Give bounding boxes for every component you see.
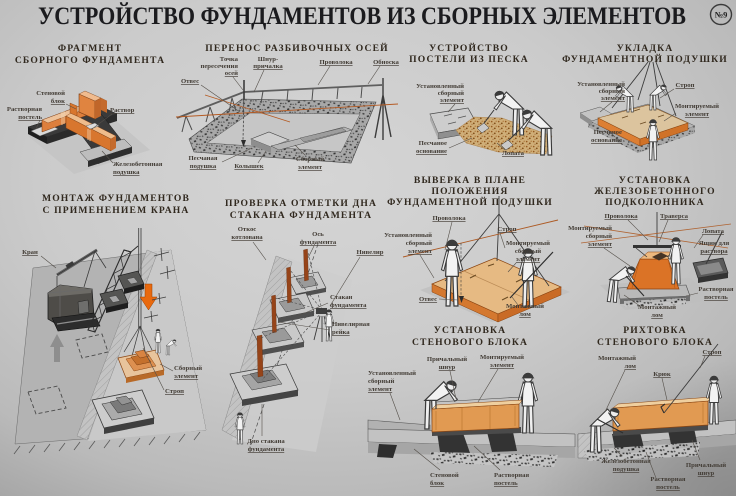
svg-text:Колышек: Колышек <box>234 163 263 170</box>
svg-text:СТЕНОВОГО БЛОКА: СТЕНОВОГО БЛОКА <box>597 337 713 348</box>
svg-text:РИХТОВКА: РИХТОВКА <box>623 325 686 336</box>
svg-text:ПОЛОЖЕНИЯ: ПОЛОЖЕНИЯ <box>432 186 509 197</box>
svg-text:ЖЕЛЕЗОБЕТОННОГО: ЖЕЛЕЗОБЕТОННОГО <box>594 186 715 197</box>
svg-text:Точка: Точка <box>220 56 239 63</box>
svg-text:Траверса: Траверса <box>660 213 689 220</box>
svg-text:сборный: сборный <box>599 88 625 95</box>
svg-text:Строп: Строп <box>675 82 694 89</box>
svg-text:Песчаная: Песчаная <box>188 155 217 162</box>
svg-text:СТЕНОВОГО БЛОКА: СТЕНОВОГО БЛОКА <box>412 337 528 348</box>
svg-text:Строп: Строп <box>165 388 184 395</box>
svg-text:Причальный: Причальный <box>686 462 726 469</box>
svg-text:Нивелирная: Нивелирная <box>332 321 370 328</box>
svg-text:осей: осей <box>225 70 238 77</box>
svg-text:котлована: котлована <box>231 234 263 241</box>
svg-text:ПЕРЕНОС РАЗБИВОЧНЫХ ОСЕЙ: ПЕРЕНОС РАЗБИВОЧНЫХ ОСЕЙ <box>205 42 389 54</box>
svg-text:УСТРОЙСТВО ФУНДАМЕНТОВ ИЗ СБОР: УСТРОЙСТВО ФУНДАМЕНТОВ ИЗ СБОРНЫХ ЭЛЕМЕН… <box>38 2 686 30</box>
svg-text:фундамента: фундамента <box>330 302 367 309</box>
svg-text:Монтируемый: Монтируемый <box>480 354 524 361</box>
svg-text:ПОСТЕЛИ ИЗ ПЕСКА: ПОСТЕЛИ ИЗ ПЕСКА <box>409 54 529 65</box>
svg-text:Лопата: Лопата <box>702 228 725 235</box>
svg-text:основание: основание <box>591 137 622 144</box>
svg-text:Растворная: Растворная <box>494 472 530 479</box>
svg-text:элемент: элемент <box>408 248 433 255</box>
svg-text:Шнур-: Шнур- <box>258 56 279 63</box>
svg-text:элемент: элемент <box>588 241 613 248</box>
svg-text:сборный: сборный <box>438 90 464 97</box>
svg-text:элемент: элемент <box>601 95 626 102</box>
svg-text:сборный: сборный <box>406 240 432 247</box>
svg-text:Откос: Откос <box>238 226 257 233</box>
svg-text:СБОРНОГО ФУНДАМЕНТА: СБОРНОГО ФУНДАМЕНТА <box>15 55 165 66</box>
svg-text:Монтируемый: Монтируемый <box>675 103 719 110</box>
svg-text:Установленный: Установленный <box>577 81 625 88</box>
svg-text:УКЛАДКА: УКЛАДКА <box>617 43 674 54</box>
svg-text:постель: постель <box>656 484 680 491</box>
svg-text:ФРАГМЕНТ: ФРАГМЕНТ <box>58 43 122 54</box>
svg-text:№9: №9 <box>715 10 728 20</box>
svg-text:шнур: шнур <box>698 470 715 477</box>
svg-text:сборный: сборный <box>586 233 612 240</box>
svg-text:УСТАНОВКА: УСТАНОВКА <box>619 175 691 186</box>
svg-text:Кран: Кран <box>22 249 38 256</box>
svg-text:постель: постель <box>494 480 518 487</box>
svg-text:сборный: сборный <box>368 378 394 385</box>
svg-text:лом: лом <box>624 363 636 370</box>
svg-text:пересечения: пересечения <box>200 63 238 70</box>
svg-text:рейка: рейка <box>332 329 350 336</box>
svg-text:Сборный: Сборный <box>296 156 324 163</box>
svg-text:элемент: элемент <box>440 97 465 104</box>
svg-text:подушка: подушка <box>190 163 217 170</box>
svg-text:Железобетонная: Железобетонная <box>113 161 163 168</box>
svg-text:Растворная: Растворная <box>698 286 734 293</box>
svg-text:элемент: элемент <box>685 111 710 118</box>
svg-text:блок: блок <box>51 98 65 105</box>
svg-text:элемент: элемент <box>174 373 199 380</box>
svg-text:раствора: раствора <box>700 248 728 255</box>
svg-text:Монтажный: Монтажный <box>506 303 544 310</box>
svg-text:шнур: шнур <box>439 364 456 371</box>
svg-text:Песчаное: Песчаное <box>594 129 622 136</box>
svg-text:лом: лом <box>651 312 663 319</box>
svg-text:МОНТАЖ ФУНДАМЕНТОВ: МОНТАЖ ФУНДАМЕНТОВ <box>42 193 190 204</box>
svg-text:Нивелир: Нивелир <box>357 249 384 256</box>
svg-text:ПРОВЕРКА ОТМЕТКИ ДНА: ПРОВЕРКА ОТМЕТКИ ДНА <box>225 198 377 209</box>
svg-text:элемент: элемент <box>368 386 393 393</box>
svg-text:фундамента: фундамента <box>300 239 337 246</box>
svg-text:Ось: Ось <box>312 231 324 238</box>
svg-text:Отвес: Отвес <box>181 78 199 85</box>
svg-text:ФУНДАМЕНТНОЙ ПОДУШКИ: ФУНДАМЕНТНОЙ ПОДУШКИ <box>562 53 728 65</box>
svg-text:подушка: подушка <box>613 466 640 473</box>
svg-text:Железобетонная: Железобетонная <box>601 458 651 465</box>
svg-text:элемент: элемент <box>490 362 515 369</box>
svg-text:Проволока: Проволока <box>319 59 353 66</box>
svg-text:Лопата: Лопата <box>502 150 525 157</box>
svg-text:сборный: сборный <box>515 248 541 255</box>
svg-text:постель: постель <box>18 114 42 121</box>
svg-text:С ПРИМЕНЕНИЕМ КРАНА: С ПРИМЕНЕНИЕМ КРАНА <box>43 205 190 216</box>
svg-text:ВЫВЕРКА В ПЛАНЕ: ВЫВЕРКА В ПЛАНЕ <box>414 175 526 186</box>
svg-text:Строп: Строп <box>702 349 721 356</box>
svg-text:Строп: Строп <box>497 226 516 233</box>
svg-text:лом: лом <box>519 311 531 318</box>
svg-text:Монтируемый: Монтируемый <box>568 225 612 232</box>
svg-text:Стеновой: Стеновой <box>430 472 459 479</box>
svg-text:Дно стакана: Дно стакана <box>247 438 285 445</box>
svg-text:Песчаное: Песчаное <box>419 140 447 147</box>
svg-text:подушка: подушка <box>113 169 140 176</box>
svg-text:УСТРОЙСТВО: УСТРОЙСТВО <box>429 42 509 54</box>
svg-text:СТАКАНА ФУНДАМЕНТА: СТАКАНА ФУНДАМЕНТА <box>230 210 372 221</box>
svg-text:Растворная: Растворная <box>7 106 43 113</box>
svg-text:Установленный: Установленный <box>368 370 416 377</box>
svg-text:Крюк: Крюк <box>653 371 671 378</box>
svg-text:Проволока: Проволока <box>432 215 466 222</box>
svg-text:Раствор: Раствор <box>110 107 135 114</box>
svg-text:Проволока: Проволока <box>604 213 638 220</box>
svg-text:основание: основание <box>416 148 447 155</box>
svg-text:Монтажный: Монтажный <box>638 304 676 311</box>
svg-text:блок: блок <box>430 480 444 487</box>
svg-text:Монтируемый: Монтируемый <box>506 240 550 247</box>
svg-text:фундамента: фундамента <box>248 446 285 453</box>
svg-text:Установленный: Установленный <box>416 83 464 90</box>
svg-text:причалка: причалка <box>253 63 283 70</box>
svg-text:Причальный: Причальный <box>427 356 467 363</box>
svg-text:УСТАНОВКА: УСТАНОВКА <box>434 325 506 336</box>
svg-text:элемент: элемент <box>298 164 323 171</box>
svg-text:Монтажный: Монтажный <box>598 355 636 362</box>
svg-text:Стеновой: Стеновой <box>36 90 65 97</box>
svg-text:Отвес: Отвес <box>419 296 437 303</box>
svg-text:ФУНДАМЕНТНОЙ ПОДУШКИ: ФУНДАМЕНТНОЙ ПОДУШКИ <box>387 196 553 208</box>
svg-text:элемент: элемент <box>516 256 541 263</box>
svg-text:Установленный: Установленный <box>384 232 432 239</box>
svg-text:Обноска: Обноска <box>373 59 399 66</box>
svg-text:Сборный: Сборный <box>174 365 202 372</box>
svg-text:ПОДКОЛОННИКА: ПОДКОЛОННИКА <box>605 197 704 208</box>
svg-text:Ящик для: Ящик для <box>699 240 730 247</box>
svg-text:постель: постель <box>704 294 728 301</box>
svg-text:Стакан: Стакан <box>330 294 353 301</box>
